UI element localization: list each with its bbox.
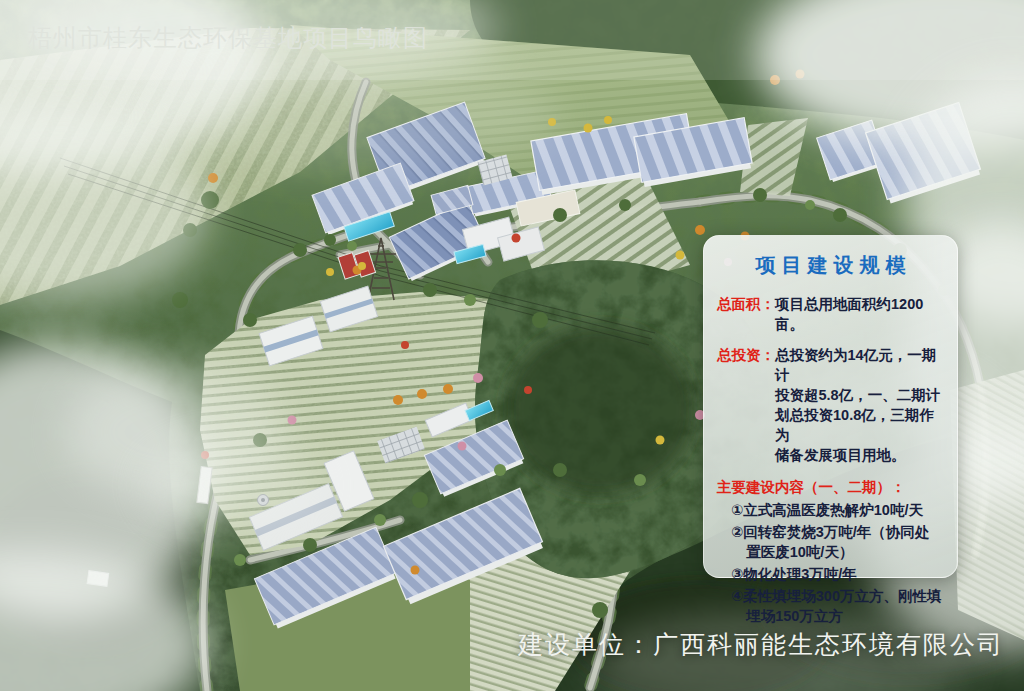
panel-title: 项目建设规模 — [717, 252, 944, 279]
construction-unit-caption: 建设单位：广西科丽能生态环境有限公司 — [518, 628, 1004, 661]
total-area-value: 项目总用地面积约1200亩。 — [775, 294, 944, 334]
content-item-2: ②回转窑焚烧3万吨/年（协同处 置医废10吨/天） — [731, 522, 944, 562]
birdseye-rendering-poster: 梧州市桂东生态环保基地项目鸟瞰图 项目建设规模 总面积： 项目总用地面积约120… — [0, 0, 1024, 691]
page-title: 梧州市桂东生态环保基地项目鸟瞰图 — [28, 22, 428, 54]
project-scale-panel: 项目建设规模 总面积： 项目总用地面积约1200亩。 总投资： 总投资约为14亿… — [703, 235, 958, 578]
main-content-label: 主要建设内容（一、二期）： — [717, 477, 944, 497]
total-area-label: 总面积： — [717, 294, 775, 314]
content-item-1: ①立式高温医废热解炉10吨/天 — [731, 500, 944, 520]
total-investment-value: 总投资约为14亿元，一期计 投资超5.8亿，一、二期计 划总投资10.8亿，三期… — [775, 345, 944, 465]
total-investment-row: 总投资： 总投资约为14亿元，一期计 投资超5.8亿，一、二期计 划总投资10.… — [717, 345, 944, 465]
content-item-3: ③物化处理3万吨/年 — [731, 564, 944, 584]
total-area-row: 总面积： 项目总用地面积约1200亩。 — [717, 294, 944, 334]
content-item-4: ④柔性填埋场300万立方、刚性填 埋场150万立方 — [731, 586, 944, 626]
total-investment-label: 总投资： — [717, 345, 775, 365]
